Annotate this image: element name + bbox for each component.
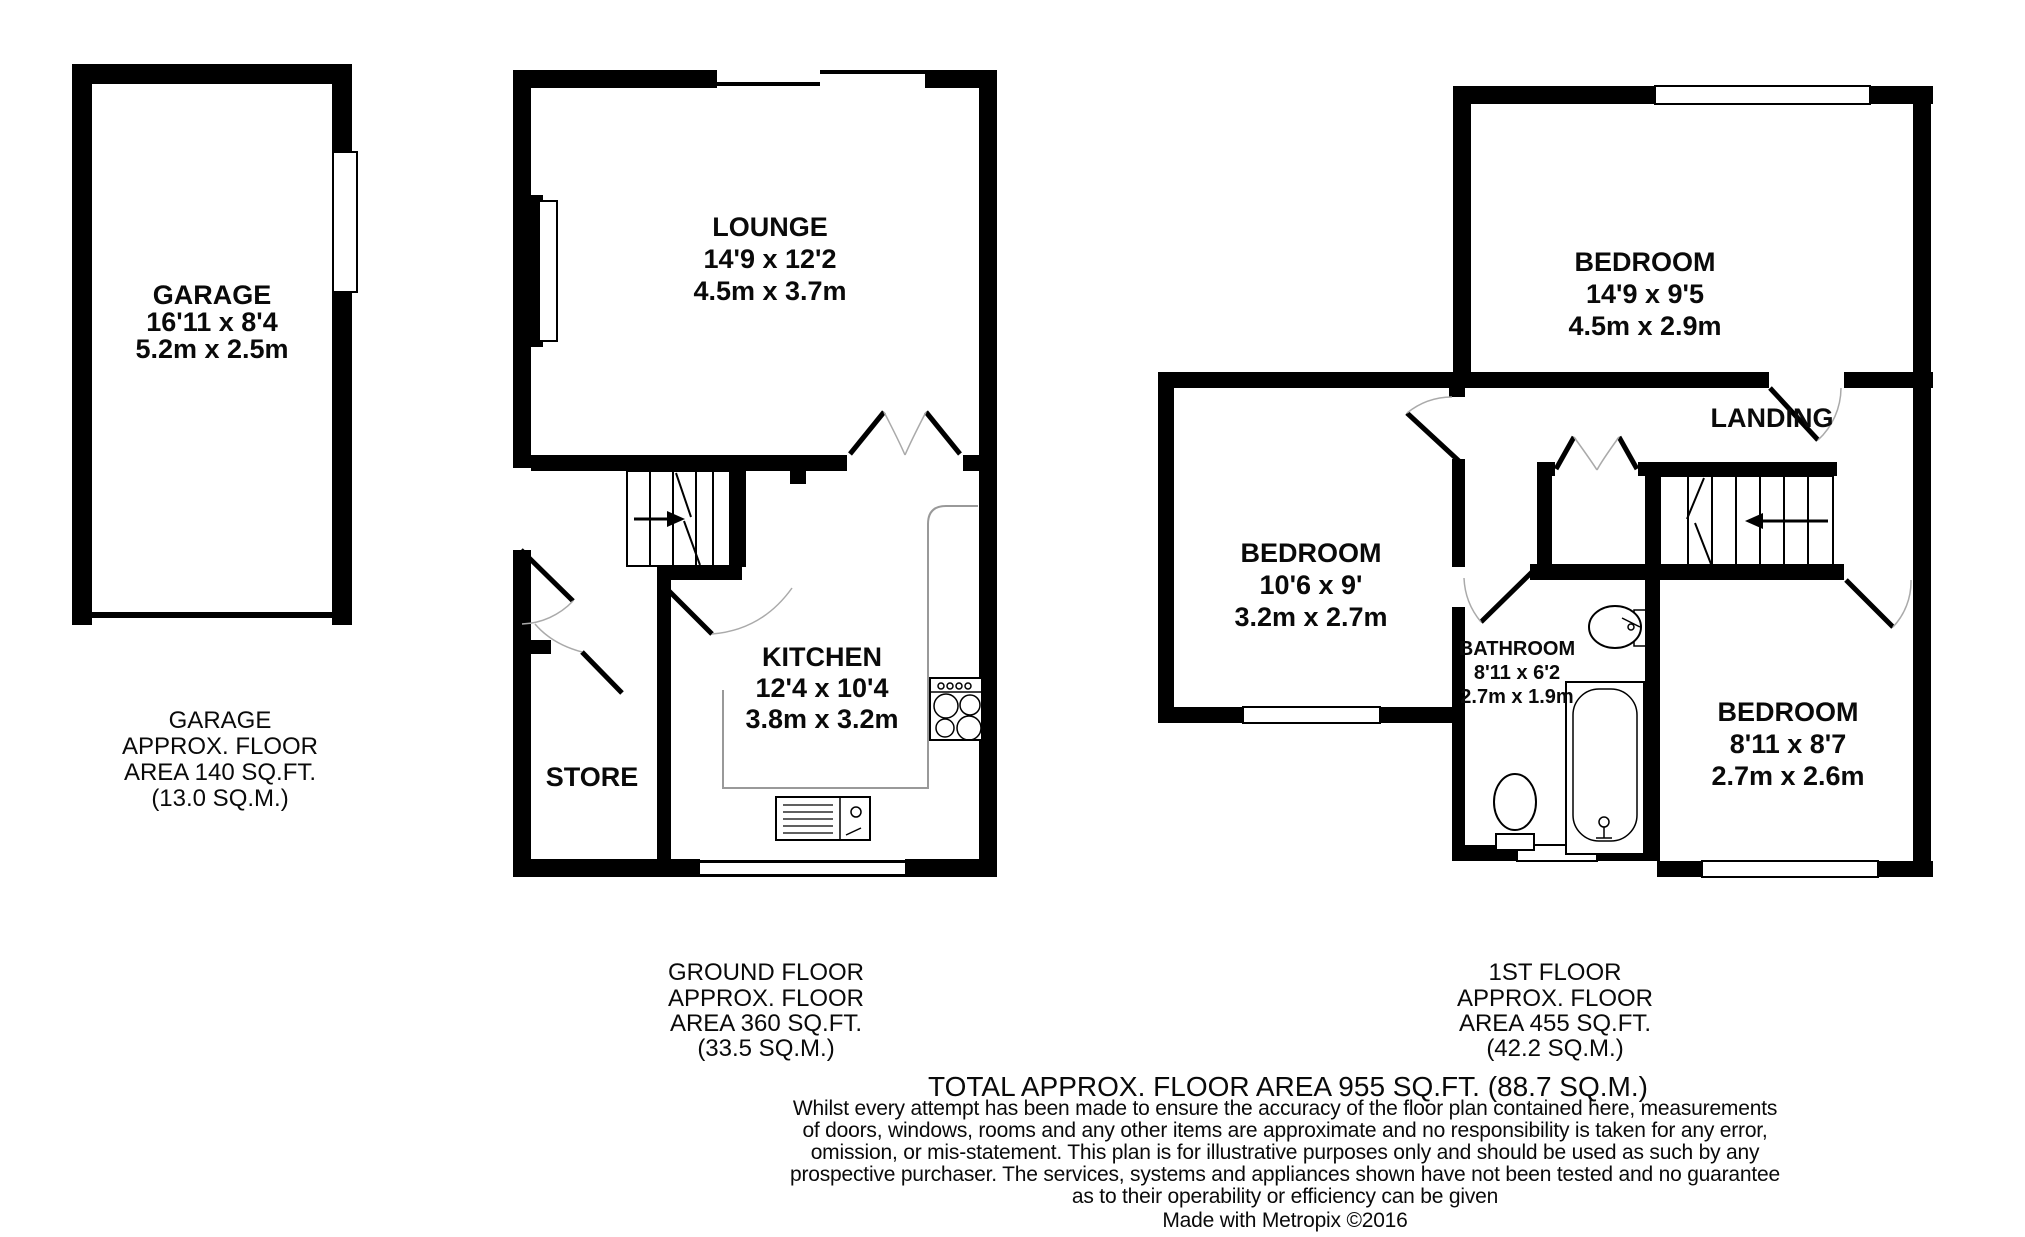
bathroom-dims-metric: 2.7m x 1.9m <box>1460 686 1573 708</box>
garage-area-line2: APPROX. FLOOR <box>122 733 318 760</box>
garage-name: GARAGE <box>153 280 272 310</box>
first-floor-plan: BEDROOM 14'9 x 9'5 4.5m x 2.9m LANDING B… <box>1158 86 1933 877</box>
metropix-credit: Made with Metropix ©2016 <box>1162 1209 1407 1232</box>
disclaimer-line1: Whilst every attempt has been made to en… <box>793 1097 1777 1120</box>
ground-floor-plan: LOUNGE 14'9 x 12'2 4.5m x 3.7m KITCHEN 1… <box>513 70 997 877</box>
first-area-line2: APPROX. FLOOR <box>1457 985 1653 1012</box>
landing-label: LANDING <box>1711 403 1834 433</box>
bathroom-name: BATHROOM <box>1459 638 1575 660</box>
disclaimer-line2: of doors, windows, rooms and any other i… <box>802 1119 1767 1142</box>
bedroom2-name: BEDROOM <box>1241 538 1382 568</box>
bedroom2-dims-imperial: 10'6 x 9' <box>1260 570 1363 600</box>
store-label: STORE <box>546 762 639 792</box>
disclaimer-line5: as to their operability or efficiency ca… <box>1072 1185 1498 1208</box>
disclaimer-line3: omission, or mis-statement. This plan is… <box>811 1141 1760 1164</box>
lounge-dims-imperial: 14'9 x 12'2 <box>704 244 837 274</box>
bathroom-label: BATHROOM 8'11 x 6'2 2.7m x 1.9m <box>1459 638 1575 708</box>
first-floor-area-text: 1ST FLOOR APPROX. FLOOR AREA 455 SQ.FT. … <box>1457 959 1653 1062</box>
kitchen-label: KITCHEN 12'4 x 10'4 3.8m x 3.2m <box>745 642 898 734</box>
lounge-name: LOUNGE <box>712 212 828 242</box>
toilet-icon <box>1494 774 1536 850</box>
garage-room-label: GARAGE 16'11 x 8'4 5.2m x 2.5m <box>135 280 288 364</box>
lounge-label: LOUNGE 14'9 x 12'2 4.5m x 3.7m <box>693 212 846 306</box>
bedroom2-label: BEDROOM 10'6 x 9' 3.2m x 2.7m <box>1234 538 1387 632</box>
kitchen-door <box>660 582 792 634</box>
bedroom2-window <box>1243 707 1380 723</box>
bedroom3-label: BEDROOM 8'11 x 8'7 2.7m x 2.6m <box>1711 697 1864 791</box>
first-area-line4: (42.2 SQ.M.) <box>1486 1035 1623 1062</box>
garage-window <box>333 152 357 292</box>
stairs-first-icon <box>1660 476 1833 566</box>
first-area-line3: AREA 455 SQ.FT. <box>1459 1010 1651 1037</box>
ground-floor-area-text: GROUND FLOOR APPROX. FLOOR AREA 360 SQ.F… <box>668 959 864 1062</box>
disclaimer-line4: prospective purchaser. The services, sys… <box>790 1163 1780 1186</box>
garage-area-line3: AREA 140 SQ.FT. <box>124 759 316 786</box>
bedroom1-dims-metric: 4.5m x 2.9m <box>1568 311 1721 341</box>
cupboard-doors <box>1556 437 1637 470</box>
lounge-top-window <box>717 82 820 86</box>
ground-floor-walls <box>513 70 997 877</box>
bedroom1-name: BEDROOM <box>1575 247 1716 277</box>
bathroom-sink-icon <box>1589 606 1646 648</box>
bedroom3-dims-metric: 2.7m x 2.6m <box>1711 761 1864 791</box>
garage-area-line1: GARAGE <box>169 707 272 734</box>
ground-area-line3: AREA 360 SQ.FT. <box>670 1010 862 1037</box>
bathtub-icon <box>1566 682 1644 854</box>
bedroom1-label: BEDROOM 14'9 x 9'5 4.5m x 2.9m <box>1568 247 1721 341</box>
garage-plan: GARAGE 16'11 x 8'4 5.2m x 2.5m <box>72 64 357 625</box>
store-door <box>535 624 622 693</box>
footer: TOTAL APPROX. FLOOR AREA 955 SQ.FT. (88.… <box>790 1071 1780 1232</box>
garage-area-line4: (13.0 SQ.M.) <box>151 785 288 812</box>
hob-icon <box>930 678 982 740</box>
lounge-top-window-2 <box>820 70 925 74</box>
bedroom1-window <box>1655 86 1870 104</box>
kitchen-window <box>700 860 905 877</box>
ground-area-line1: GROUND FLOOR <box>668 959 864 986</box>
bathroom-dims-imperial: 8'11 x 6'2 <box>1474 662 1560 684</box>
bathroom-door <box>1464 571 1533 622</box>
stairs-ground-icon <box>627 471 730 566</box>
ground-area-line4: (33.5 SQ.M.) <box>697 1035 834 1062</box>
bedroom3-window <box>1702 861 1878 877</box>
garage-door <box>92 612 332 618</box>
kitchen-name: KITCHEN <box>762 642 882 672</box>
floor-plan-canvas: GARAGE 16'11 x 8'4 5.2m x 2.5m <box>0 0 2025 1237</box>
ground-area-line2: APPROX. FLOOR <box>668 985 864 1012</box>
kitchen-dims-metric: 3.8m x 3.2m <box>745 704 898 734</box>
garage-dims-imperial: 16'11 x 8'4 <box>146 307 277 337</box>
bedroom3-name: BEDROOM <box>1718 697 1859 727</box>
garage-area-text: GARAGE APPROX. FLOOR AREA 140 SQ.FT. (13… <box>122 707 318 812</box>
first-area-line1: 1ST FLOOR <box>1489 959 1622 986</box>
lounge-side-window <box>539 201 557 341</box>
garage-dims-metric: 5.2m x 2.5m <box>135 334 288 364</box>
lounge-dims-metric: 4.5m x 3.7m <box>693 276 846 306</box>
bedroom2-dims-metric: 3.2m x 2.7m <box>1234 602 1387 632</box>
bedroom2-door <box>1407 397 1460 462</box>
floorplan-page: GARAGE 16'11 x 8'4 5.2m x 2.5m <box>0 0 2025 1237</box>
lounge-double-doors <box>850 412 960 455</box>
bedroom3-dims-imperial: 8'11 x 8'7 <box>1730 729 1846 759</box>
bedroom3-door <box>1846 580 1911 627</box>
bedroom1-dims-imperial: 14'9 x 9'5 <box>1586 279 1704 309</box>
sink-icon <box>776 797 870 840</box>
kitchen-dims-imperial: 12'4 x 10'4 <box>756 673 889 703</box>
